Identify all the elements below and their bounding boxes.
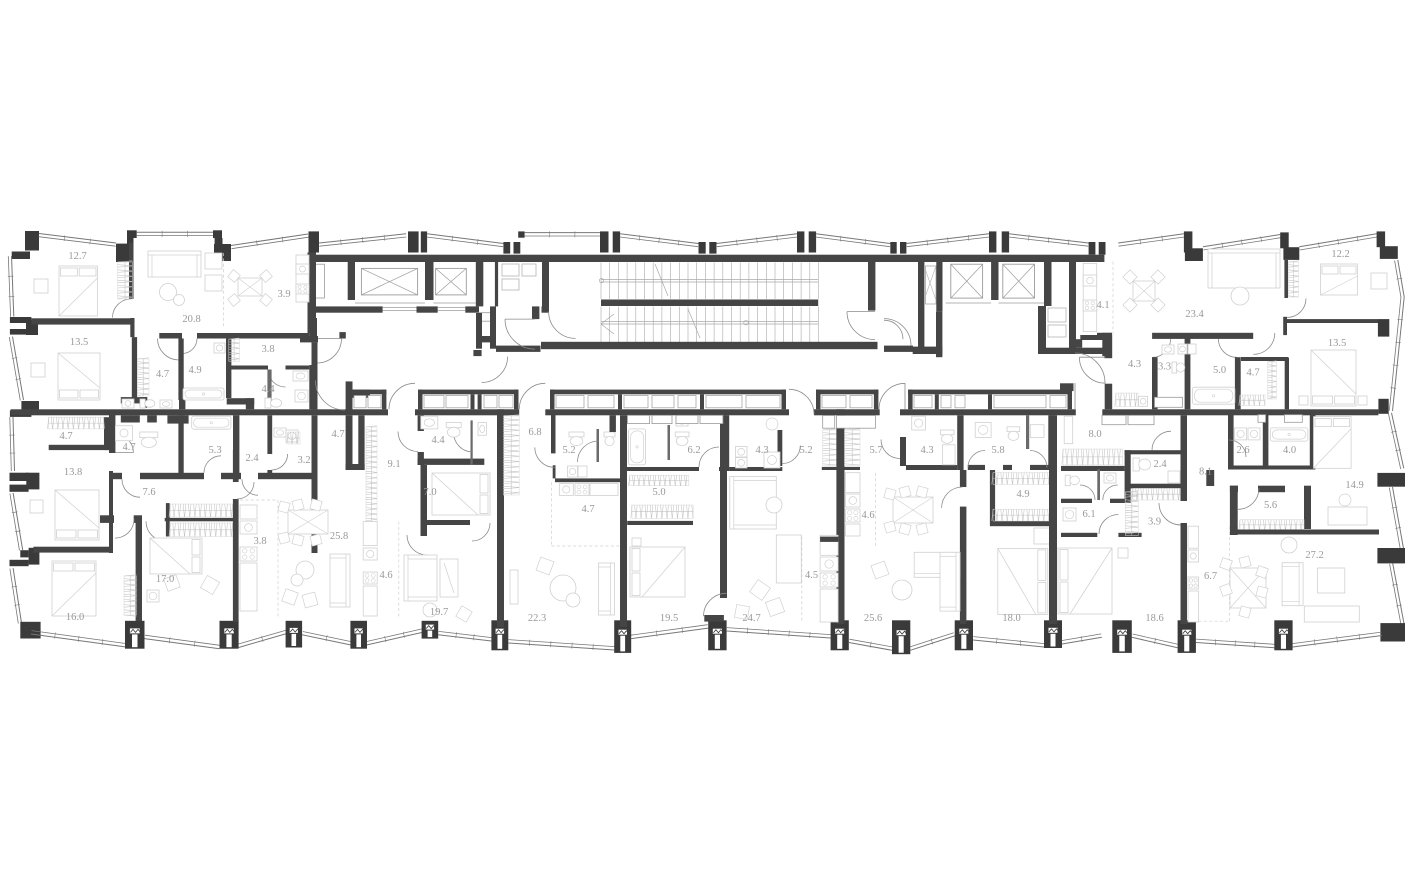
svg-text:13.8: 13.8 xyxy=(64,467,82,478)
svg-text:5.0: 5.0 xyxy=(652,487,665,498)
svg-text:4.7: 4.7 xyxy=(1246,368,1259,379)
svg-text:7.6: 7.6 xyxy=(142,487,155,498)
svg-text:4.6: 4.6 xyxy=(861,510,874,521)
svg-text:19.7: 19.7 xyxy=(430,607,448,618)
svg-text:18.6: 18.6 xyxy=(1145,613,1163,624)
svg-text:5.8: 5.8 xyxy=(991,445,1004,456)
svg-text:6.1: 6.1 xyxy=(1082,509,1095,520)
svg-text:3.9: 3.9 xyxy=(1148,517,1161,528)
svg-text:16.0: 16.0 xyxy=(66,612,84,623)
svg-text:4.3: 4.3 xyxy=(920,445,933,456)
svg-text:6.2: 6.2 xyxy=(687,445,700,456)
svg-text:4.3: 4.3 xyxy=(755,445,768,456)
svg-text:4.3: 4.3 xyxy=(1128,359,1141,370)
svg-text:4.9: 4.9 xyxy=(188,365,201,376)
svg-text:13.5: 13.5 xyxy=(70,337,88,348)
svg-text:4.5: 4.5 xyxy=(805,570,818,581)
svg-text:3.3: 3.3 xyxy=(1158,362,1171,373)
svg-text:4.0: 4.0 xyxy=(1283,445,1296,456)
svg-text:3.8: 3.8 xyxy=(253,536,266,547)
svg-text:25.6: 25.6 xyxy=(864,613,882,624)
svg-text:4.7: 4.7 xyxy=(331,429,344,440)
svg-text:3.2: 3.2 xyxy=(297,455,310,466)
svg-text:13.5: 13.5 xyxy=(1328,338,1346,349)
svg-text:9.1: 9.1 xyxy=(387,459,400,470)
svg-text:18.0: 18.0 xyxy=(1002,613,1020,624)
svg-text:4.4: 4.4 xyxy=(261,384,275,395)
svg-text:4.1: 4.1 xyxy=(1096,300,1109,311)
svg-text:25.8: 25.8 xyxy=(330,531,348,542)
svg-text:2.4: 2.4 xyxy=(245,453,259,464)
svg-text:7.0: 7.0 xyxy=(423,487,436,498)
svg-text:5.2: 5.2 xyxy=(799,445,812,456)
svg-text:4.7: 4.7 xyxy=(59,431,72,442)
svg-text:8.0: 8.0 xyxy=(1088,429,1101,440)
svg-text:4.9: 4.9 xyxy=(1016,489,1029,500)
svg-text:5.7: 5.7 xyxy=(869,445,882,456)
svg-text:5.2: 5.2 xyxy=(562,445,575,456)
svg-text:4.7: 4.7 xyxy=(122,442,135,453)
svg-text:4.7: 4.7 xyxy=(581,504,594,515)
svg-text:3.9: 3.9 xyxy=(277,289,290,300)
svg-text:5.0: 5.0 xyxy=(1213,365,1226,376)
svg-text:3.8: 3.8 xyxy=(261,344,274,355)
svg-text:27.2: 27.2 xyxy=(1305,550,1323,561)
svg-text:19.5: 19.5 xyxy=(660,613,678,624)
svg-text:5.6: 5.6 xyxy=(1264,500,1277,511)
svg-text:23.4: 23.4 xyxy=(1185,309,1204,320)
svg-text:8.1: 8.1 xyxy=(1199,467,1212,478)
svg-text:17.0: 17.0 xyxy=(156,574,174,585)
svg-text:12.7: 12.7 xyxy=(68,251,86,262)
svg-text:12.2: 12.2 xyxy=(1331,249,1349,260)
svg-text:4.6: 4.6 xyxy=(379,570,392,581)
svg-text:20.8: 20.8 xyxy=(182,314,200,325)
svg-text:4.4: 4.4 xyxy=(431,435,445,446)
svg-text:5.3: 5.3 xyxy=(208,445,221,456)
svg-text:24.7: 24.7 xyxy=(742,613,760,624)
svg-text:2.4: 2.4 xyxy=(1153,459,1167,470)
svg-text:4.7: 4.7 xyxy=(156,369,169,380)
svg-text:6.8: 6.8 xyxy=(528,427,541,438)
svg-text:14.9: 14.9 xyxy=(1345,480,1363,491)
svg-text:2.6: 2.6 xyxy=(1236,445,1249,456)
svg-text:22.3: 22.3 xyxy=(528,613,546,624)
svg-text:6.7: 6.7 xyxy=(1204,571,1217,582)
